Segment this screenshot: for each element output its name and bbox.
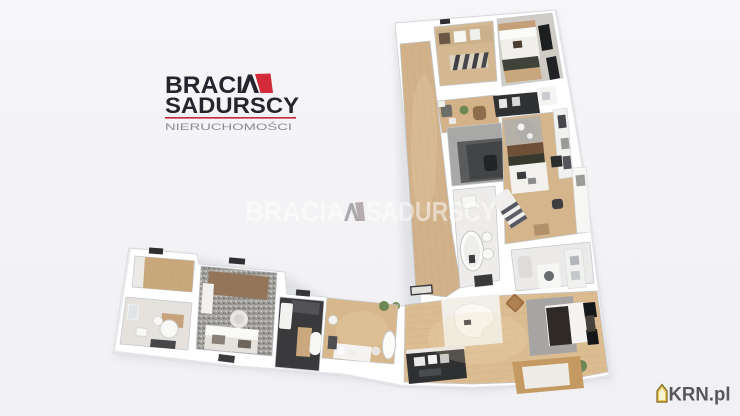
svg-text:BRACIA: BRACIA [245,196,345,227]
svg-text:KRN.pl: KRN.pl [669,384,731,406]
svg-text:NIERUCHOMOŚCI: NIERUCHOMOŚCI [165,121,292,132]
svg-text:SADURSCY: SADURSCY [366,196,496,227]
svg-text:SADURSCY: SADURSCY [165,93,299,118]
